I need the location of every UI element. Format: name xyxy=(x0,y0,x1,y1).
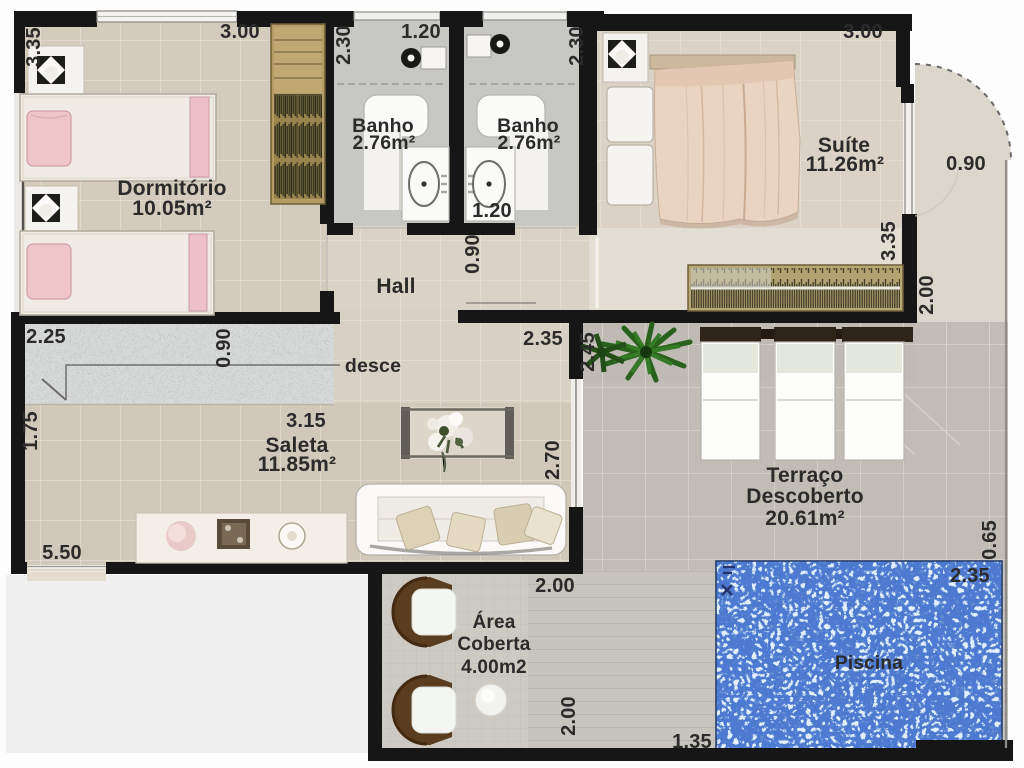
svg-text:2.35: 2.35 xyxy=(523,328,563,350)
svg-text:2.00: 2.00 xyxy=(558,696,580,736)
svg-text:20.61m²: 20.61m² xyxy=(765,507,845,530)
svg-text:5.50: 5.50 xyxy=(42,542,82,564)
svg-text:0.65: 0.65 xyxy=(979,520,1001,560)
svg-text:2.70: 2.70 xyxy=(542,440,564,480)
svg-text:1.35: 1.35 xyxy=(672,731,712,753)
svg-text:Descoberto: Descoberto xyxy=(746,485,864,508)
svg-text:2.45: 2.45 xyxy=(577,332,599,372)
svg-text:2.76m²: 2.76m² xyxy=(498,132,561,154)
svg-text:1.75: 1.75 xyxy=(20,411,42,451)
svg-text:2.30: 2.30 xyxy=(333,25,355,65)
svg-text:Hall: Hall xyxy=(376,275,415,298)
svg-text:3.35: 3.35 xyxy=(23,27,45,67)
svg-text:2.00: 2.00 xyxy=(916,275,938,315)
svg-text:Área: Área xyxy=(472,611,515,633)
svg-text:2.35: 2.35 xyxy=(950,565,990,587)
svg-text:3.00: 3.00 xyxy=(220,21,260,43)
svg-text:desce: desce xyxy=(345,355,401,377)
svg-text:2.25: 2.25 xyxy=(26,326,66,348)
svg-text:2.30: 2.30 xyxy=(566,26,588,66)
svg-text:3.35: 3.35 xyxy=(878,221,900,261)
svg-text:3.15: 3.15 xyxy=(286,410,326,432)
svg-text:Piscina: Piscina xyxy=(835,653,903,674)
svg-text:2.00: 2.00 xyxy=(535,575,575,597)
svg-text:1.20: 1.20 xyxy=(401,21,441,43)
svg-text:11.85m²: 11.85m² xyxy=(258,453,336,476)
svg-text:Coberta: Coberta xyxy=(457,634,530,655)
svg-text:2.76m²: 2.76m² xyxy=(353,132,416,154)
svg-text:0.90: 0.90 xyxy=(946,153,986,175)
svg-text:3.00: 3.00 xyxy=(843,21,883,43)
svg-text:0.90: 0.90 xyxy=(213,328,235,368)
svg-text:11.26m²: 11.26m² xyxy=(806,153,884,176)
svg-text:1.20: 1.20 xyxy=(472,200,512,222)
svg-text:Terraço: Terraço xyxy=(767,464,844,487)
svg-text:0.90: 0.90 xyxy=(462,234,484,274)
svg-text:4.00m2: 4.00m2 xyxy=(461,657,527,678)
svg-text:10.05m²: 10.05m² xyxy=(132,197,212,220)
